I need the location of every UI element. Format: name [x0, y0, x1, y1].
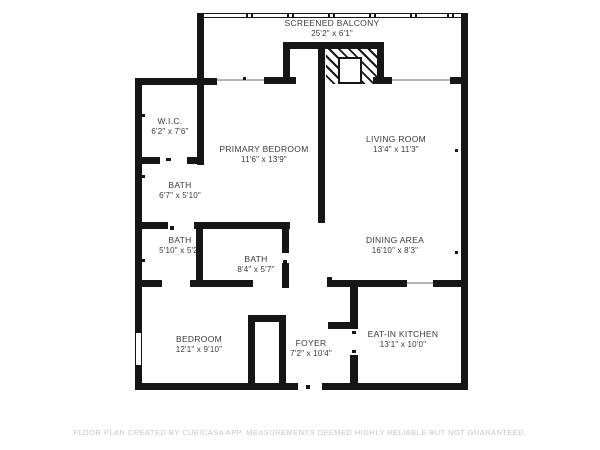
window-mullion: [415, 13, 417, 18]
wall-bath-divider: [196, 222, 203, 287]
wall-wic-bottom: [187, 157, 204, 164]
room-dims: 13'4" x 11'3": [366, 145, 426, 155]
room-label-wic: W.I.C. 6'2" x 7'6": [151, 116, 188, 137]
wall-balcony-left: [197, 13, 204, 85]
window-mullion: [292, 13, 294, 18]
wall-outer-bottom: [135, 383, 298, 390]
window-mullion: [246, 13, 248, 18]
room-name: PRIMARY BEDROOM: [219, 144, 308, 155]
room-name: BATH: [159, 235, 201, 246]
room-dims: 5'10" x 5'2": [159, 246, 201, 256]
sliding-door-line: [217, 79, 264, 81]
room-dims: 7'2" x 10'4": [290, 349, 332, 359]
wall-outer-bottom: [322, 383, 468, 390]
wall-dining-bottom: [433, 280, 461, 287]
wall-utility-closet-top: [283, 42, 384, 49]
room-dims: 16'10" x 8'3": [366, 246, 424, 256]
wall-tick: [455, 251, 458, 254]
entry-door-tick: [306, 385, 310, 389]
water-heater-icon: [338, 57, 362, 84]
room-label-living-room: LIVING ROOM 13'4" x 11'3": [366, 134, 426, 155]
room-name: BEDROOM: [176, 334, 222, 345]
window-mullion: [333, 13, 335, 18]
room-name: EAT-IN KITCHEN: [368, 329, 439, 340]
wall-bath3-right: [282, 222, 289, 253]
room-name: BATH: [159, 180, 201, 191]
door-tick: [283, 250, 287, 253]
wall-bath3-right: [282, 263, 289, 288]
room-dims: 8'4" x 5'7": [237, 265, 274, 275]
room-dims: 6'2" x 7'6": [151, 127, 188, 137]
window-mullion: [410, 13, 412, 18]
window-mullion: [452, 13, 454, 18]
room-label-bath-3: BATH 8'4" x 5'7": [237, 254, 274, 275]
window-mullion: [374, 13, 376, 18]
window-mullion: [369, 13, 371, 18]
wall-bath-top: [194, 222, 290, 229]
wall-tick: [243, 77, 246, 80]
wall-tick: [455, 149, 458, 152]
wall-outer-right: [461, 13, 468, 390]
room-label-primary-bedroom: PRIMARY BEDROOM 11'6" x 13'9": [219, 144, 308, 165]
wall-closet-left: [248, 315, 255, 385]
door-tick: [166, 158, 171, 161]
wall-bath-bottom: [190, 280, 253, 287]
wall-utility-closet-left: [283, 42, 290, 84]
wall-closet-right: [279, 315, 286, 385]
room-name: DINING AREA: [366, 235, 424, 246]
pass-through-line: [407, 282, 433, 284]
closet-interior: [255, 322, 279, 383]
floor-plan: SCREENED BALCONY 25'2" x 6'1" W.I.C. 6'2…: [0, 0, 600, 450]
room-label-bath-2: BATH 5'10" x 5'2": [159, 235, 201, 256]
room-name: SCREENED BALCONY: [284, 18, 379, 29]
room-label-screened-balcony: SCREENED BALCONY 25'2" x 6'1": [284, 18, 379, 39]
wall-dining-bottom: [327, 280, 407, 287]
door-tick: [352, 331, 356, 334]
door-tick: [283, 260, 287, 263]
wall-top-main: [135, 78, 217, 85]
window-mullion: [328, 13, 330, 18]
door-tick: [352, 350, 356, 353]
sliding-door-line: [392, 79, 450, 81]
window-mullion: [251, 13, 253, 18]
room-dims: 12'1" x 9'10": [176, 345, 222, 355]
room-dims: 6'7" x 5'10": [159, 191, 201, 201]
room-label-bedroom: BEDROOM 12'1" x 9'10": [176, 334, 222, 355]
room-name: LIVING ROOM: [366, 134, 426, 145]
bedroom-window: [135, 332, 142, 366]
window-mullion: [447, 13, 449, 18]
wall-wic-right: [197, 85, 204, 165]
room-dims: 13'1" x 10'0": [368, 340, 439, 350]
room-name: W.I.C.: [151, 116, 188, 127]
room-label-bath-1: BATH 6'7" x 5'10": [159, 180, 201, 201]
room-name: BATH: [237, 254, 274, 265]
wall-balcony-separation: [264, 77, 296, 84]
room-label-foyer: FOYER 7'2" x 10'4": [290, 338, 332, 359]
room-dims: 25'2" x 6'1": [284, 29, 379, 39]
wall-bedroom-living-divider: [318, 49, 325, 223]
door-tick: [170, 226, 174, 230]
room-name: FOYER: [290, 338, 332, 349]
wall-bath-bottom: [135, 280, 162, 287]
wall-bath-top: [135, 222, 168, 229]
wall-kitchen-left-lower: [350, 355, 358, 383]
wall-tick: [142, 114, 145, 117]
room-label-eat-in-kitchen: EAT-IN KITCHEN 13'1" x 10'0": [368, 329, 439, 350]
wall-balcony-separation: [450, 77, 461, 84]
room-label-dining-area: DINING AREA 16'10" x 8'3": [366, 235, 424, 256]
wall-tick: [142, 175, 145, 178]
window-mullion: [287, 13, 289, 18]
footer-disclaimer: FLOOR PLAN CREATED BY CUBICASA APP. MEAS…: [0, 428, 600, 437]
wall-utility-closet-right: [377, 42, 384, 84]
wall-wic-bottom: [135, 157, 160, 164]
wall-kitchen-foot: [328, 322, 358, 329]
room-dims: 11'6" x 13'9": [219, 155, 308, 165]
wall-tick: [142, 259, 145, 262]
